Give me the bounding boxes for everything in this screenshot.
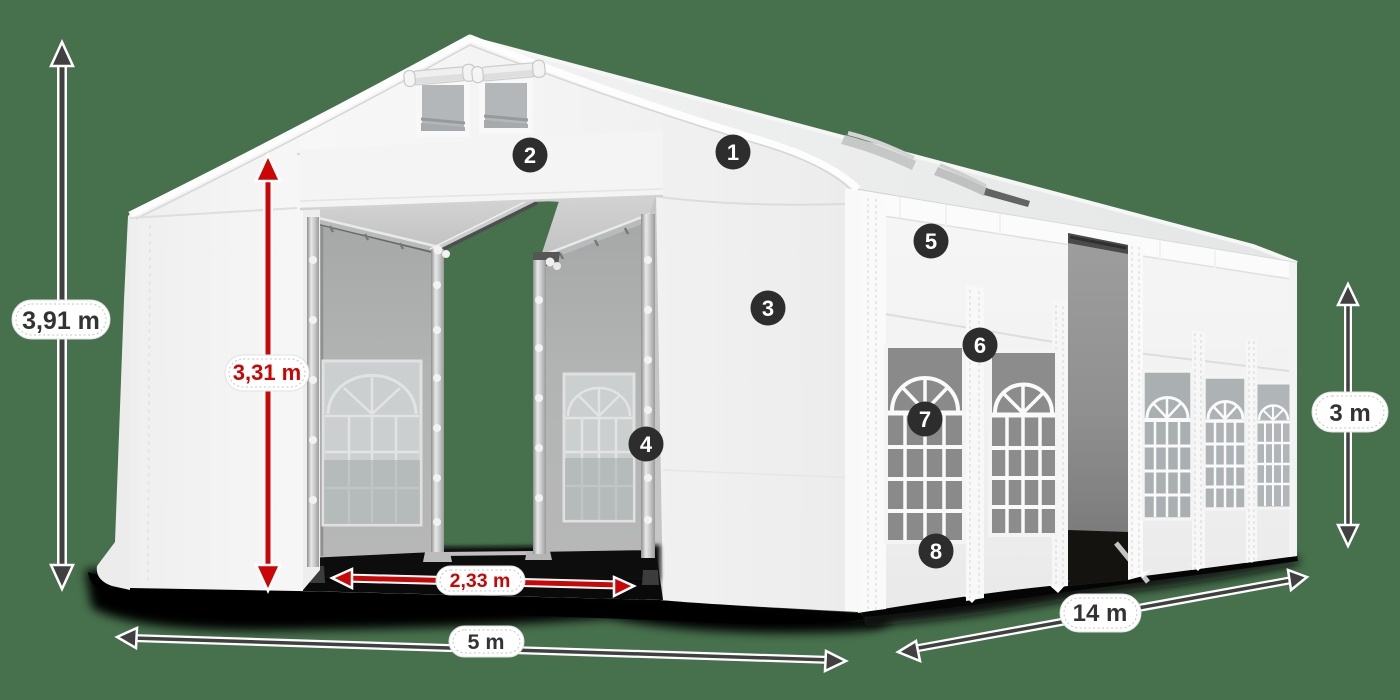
- svg-text:6: 6: [974, 333, 986, 358]
- svg-text:1: 1: [727, 140, 739, 165]
- svg-text:4: 4: [640, 432, 653, 457]
- svg-text:3,31 m: 3,31 m: [233, 360, 302, 385]
- svg-text:2: 2: [524, 143, 536, 168]
- svg-text:5: 5: [925, 229, 937, 254]
- svg-text:7: 7: [919, 407, 931, 432]
- svg-text:8: 8: [930, 539, 942, 564]
- svg-text:3: 3: [762, 296, 774, 321]
- svg-text:3,91 m: 3,91 m: [22, 307, 100, 335]
- svg-text:3 m: 3 m: [1329, 400, 1370, 427]
- svg-text:2,33 m: 2,33 m: [450, 570, 511, 592]
- svg-text:14 m: 14 m: [1073, 600, 1128, 627]
- svg-text:5 m: 5 m: [467, 630, 504, 654]
